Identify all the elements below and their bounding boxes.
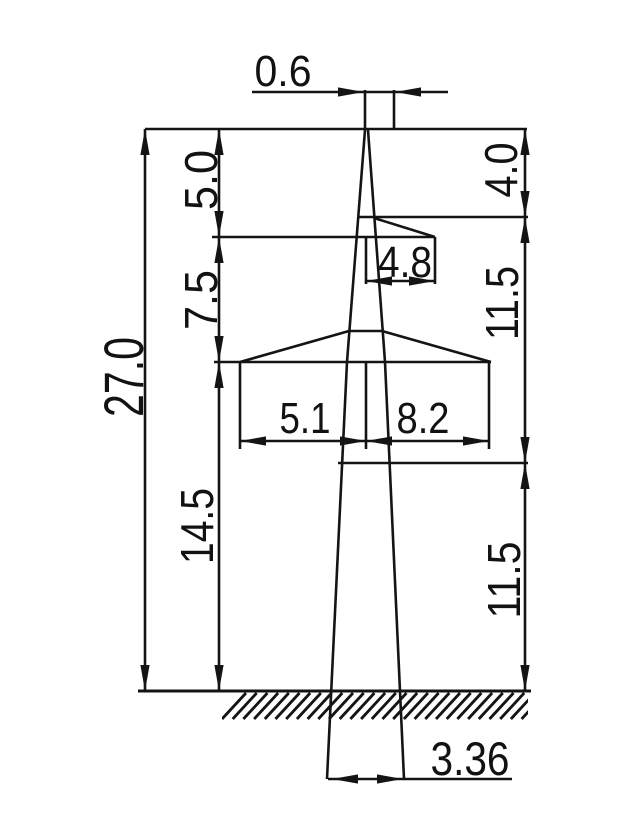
dim-label-base-width: 3.36: [431, 732, 510, 785]
dim-label-top-width: 0.6: [255, 47, 312, 96]
drawing-page: 0.627.05.07.514.54.011.511.54.85.18.23.3…: [0, 0, 640, 840]
dim-label-total-height: 27.0: [92, 337, 155, 417]
dim-label-middle-right: 11.5: [476, 266, 528, 340]
tower-dimension-drawing: 0.627.05.07.514.54.011.511.54.85.18.23.3…: [0, 0, 640, 840]
dim-label-lower-left: 14.5: [171, 488, 223, 564]
dim-label-lower-right: 11.5: [478, 542, 530, 619]
dim-label-crossarm-right: 8.2: [397, 394, 450, 443]
dim-label-arm-reach: 4.8: [378, 238, 432, 287]
dim-label-upper-left: 5.0: [175, 150, 227, 210]
dim-label-upper-right: 4.0: [475, 143, 527, 198]
dim-label-middle-left: 7.5: [175, 270, 227, 330]
dim-label-crossarm-left: 5.1: [280, 394, 331, 443]
